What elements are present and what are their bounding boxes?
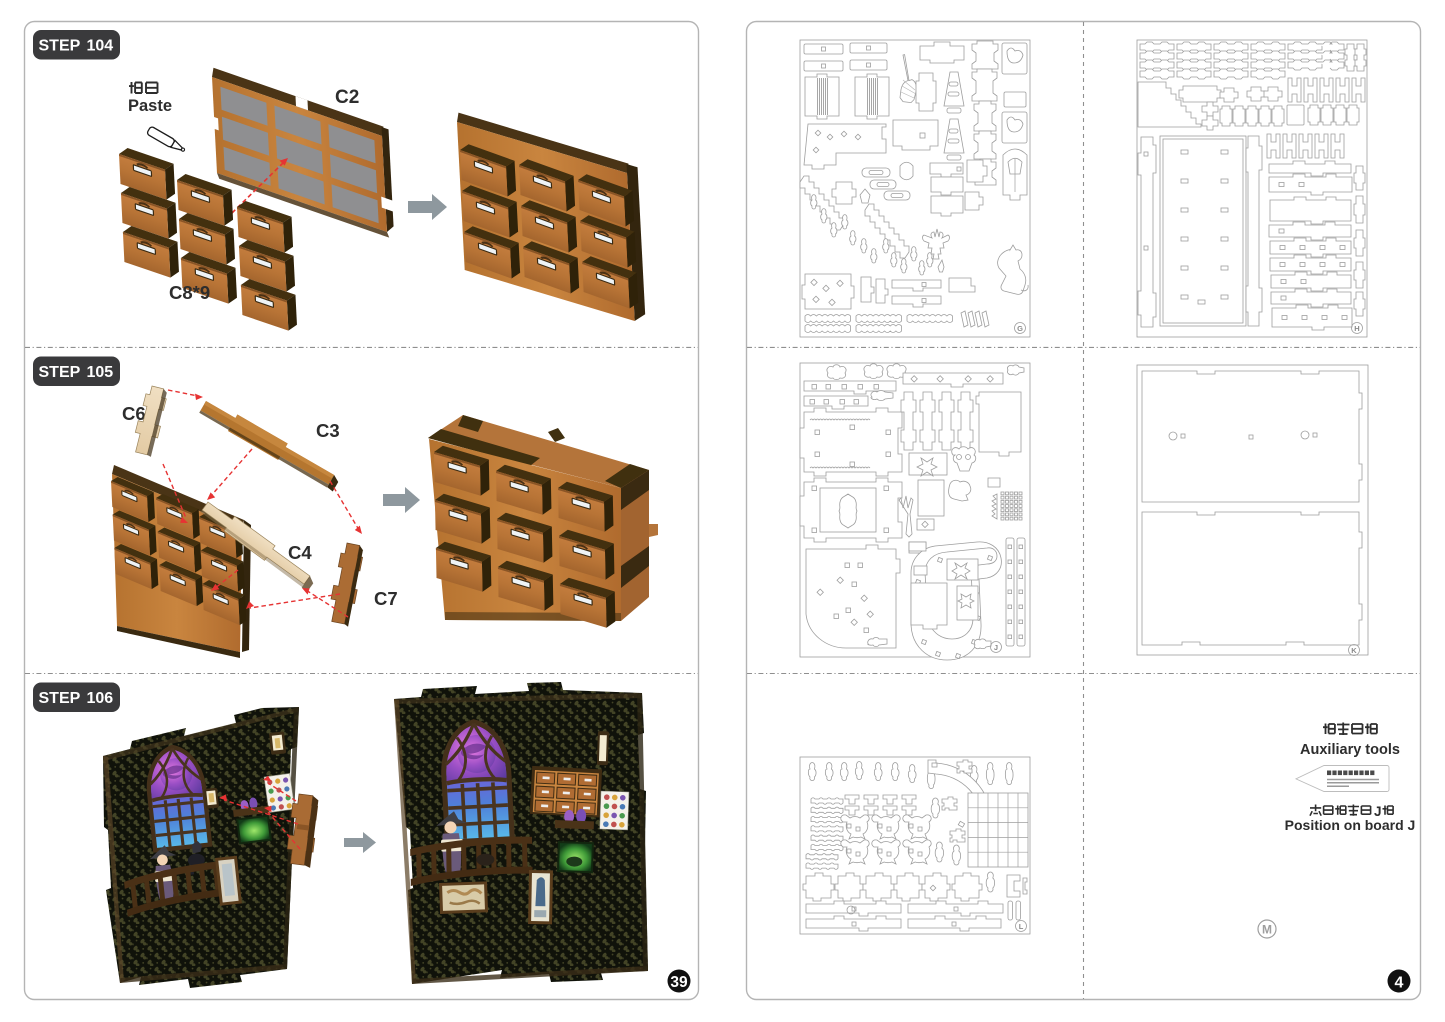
svg-text:K: K bbox=[1351, 646, 1357, 655]
svg-text:4: 4 bbox=[1395, 975, 1404, 992]
svg-text:H: H bbox=[1354, 324, 1359, 333]
svg-text:Paste: Paste bbox=[128, 97, 172, 115]
svg-text:J: J bbox=[994, 643, 998, 652]
svg-text:39: 39 bbox=[670, 974, 688, 991]
svg-text:STEP 106: STEP 106 bbox=[39, 690, 114, 707]
svg-text:G: G bbox=[1017, 324, 1023, 333]
svg-text:STEP 105: STEP 105 bbox=[39, 364, 114, 381]
svg-text:C8*9: C8*9 bbox=[169, 282, 210, 303]
svg-text:C2: C2 bbox=[335, 87, 359, 108]
svg-text:C3: C3 bbox=[316, 420, 340, 441]
svg-text:C7: C7 bbox=[374, 588, 398, 609]
svg-text:STEP 104: STEP 104 bbox=[39, 38, 114, 55]
svg-text:L: L bbox=[1019, 922, 1024, 931]
svg-text:C6: C6 bbox=[122, 403, 146, 424]
svg-text:M: M bbox=[1262, 923, 1272, 937]
svg-text:Auxiliary tools: Auxiliary tools bbox=[1300, 742, 1400, 758]
svg-text:C4: C4 bbox=[288, 542, 312, 563]
svg-text:Position on board J: Position on board J bbox=[1285, 817, 1416, 833]
